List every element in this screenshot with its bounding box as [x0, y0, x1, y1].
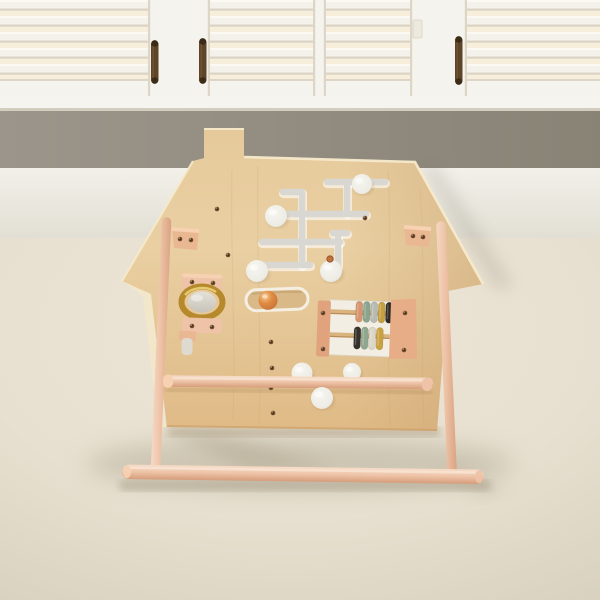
maze-knob — [246, 260, 268, 282]
rod-cap — [199, 77, 206, 84]
hinge-bracket-left — [172, 227, 199, 250]
shutter-rail-shadow-line — [0, 79, 600, 81]
stile-edge-shadow — [410, 0, 412, 96]
abacus-bead — [353, 327, 361, 350]
stile-edge-shadow — [465, 0, 467, 96]
crossbar-cap-left — [163, 374, 173, 388]
mirror-glare — [191, 295, 203, 302]
screw-glint — [191, 324, 192, 325]
screw-glint — [227, 253, 228, 254]
ball-slot — [246, 288, 309, 311]
screw-glint — [364, 216, 365, 217]
mirror — [188, 292, 216, 313]
screw-glint — [190, 238, 191, 239]
abacus-bead — [355, 301, 363, 322]
shutter-hinge — [413, 20, 422, 38]
board-knob-glint — [346, 367, 353, 372]
abacus-beads-top-row — [355, 301, 393, 323]
screw-glint — [211, 325, 212, 326]
screw-glint — [322, 311, 323, 312]
stile-edge-shadow — [313, 0, 315, 96]
abacus-bead — [370, 302, 378, 323]
stile-edge-shadow — [148, 0, 150, 96]
board-knob — [311, 387, 333, 409]
maze-knob-glint — [250, 264, 259, 270]
screw-glint — [403, 348, 404, 349]
shutter-tilt-rod — [199, 39, 207, 83]
abacus-bead — [376, 327, 384, 350]
abacus-bead — [363, 301, 371, 322]
screw-glint — [422, 235, 423, 236]
photo-nursery-busy-board — [0, 0, 600, 600]
shutter-louvers — [0, 0, 600, 82]
maze-knob — [320, 260, 342, 282]
screw-glint — [412, 234, 413, 235]
stile-edge-shadow — [324, 0, 326, 96]
rod-cap — [151, 77, 158, 84]
rod-cap — [151, 40, 158, 47]
hook-tab — [182, 338, 193, 355]
screw-glint — [270, 340, 271, 341]
shutter-tilt-rod — [455, 37, 463, 84]
screw-glint — [404, 311, 405, 312]
board-knob-glint — [295, 367, 303, 373]
maze-knob-glint — [324, 264, 333, 270]
abacus-bead — [378, 302, 386, 323]
rod-cap — [199, 38, 206, 45]
screw-glint — [322, 347, 323, 348]
rod-cap — [455, 36, 462, 43]
window-shutters — [0, 0, 600, 112]
screw-glint — [216, 207, 217, 208]
abacus-bead — [361, 327, 369, 350]
abacus-bead — [368, 327, 376, 350]
screw-glint — [272, 411, 273, 412]
shutter-bottom-rail — [0, 80, 600, 96]
screw-glint — [212, 281, 213, 282]
maze-knob-glint — [269, 209, 278, 215]
shutter-tilt-rod — [151, 41, 159, 83]
screw-glint — [191, 280, 192, 281]
sill-shadow-line — [0, 108, 600, 112]
board-knob-glint — [315, 391, 324, 397]
screw-glint — [271, 366, 272, 367]
crossbar-cap-right — [422, 378, 432, 392]
stile-edge-shadow — [208, 0, 210, 96]
hinge-bracket-right — [404, 225, 431, 247]
screw-glint — [179, 237, 180, 238]
copper-peg — [327, 256, 333, 262]
scene-canvas — [0, 0, 600, 600]
rod-cap — [455, 78, 462, 85]
maze-knob-glint — [355, 178, 363, 184]
maze-knob — [265, 205, 287, 227]
maze-knob — [352, 174, 372, 194]
